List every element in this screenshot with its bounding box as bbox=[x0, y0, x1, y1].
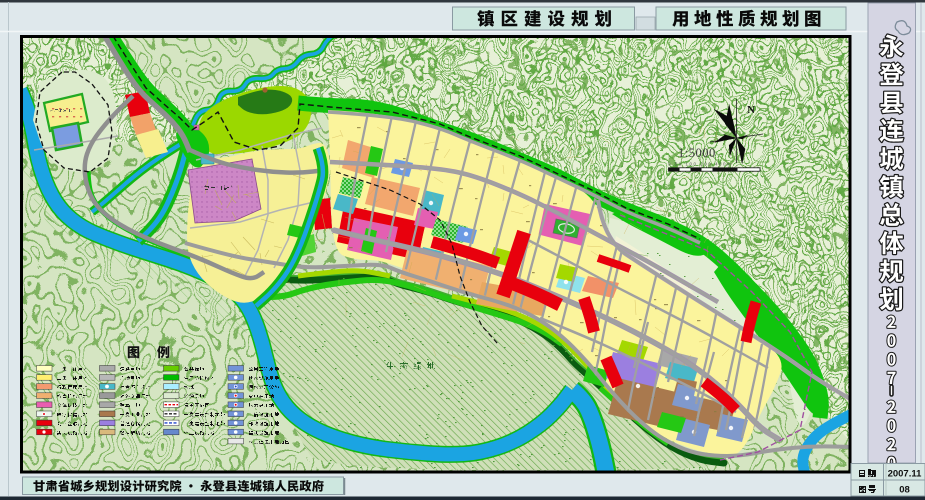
svg-text:0 50 100 200 400m: 0 50 100 200 400m bbox=[668, 162, 732, 167]
svg-text:N: N bbox=[747, 104, 755, 116]
svg-text:2007.11: 2007.11 bbox=[888, 469, 923, 480]
svg-text:08: 08 bbox=[899, 485, 910, 496]
svg-text:1:5000: 1:5000 bbox=[678, 146, 716, 160]
